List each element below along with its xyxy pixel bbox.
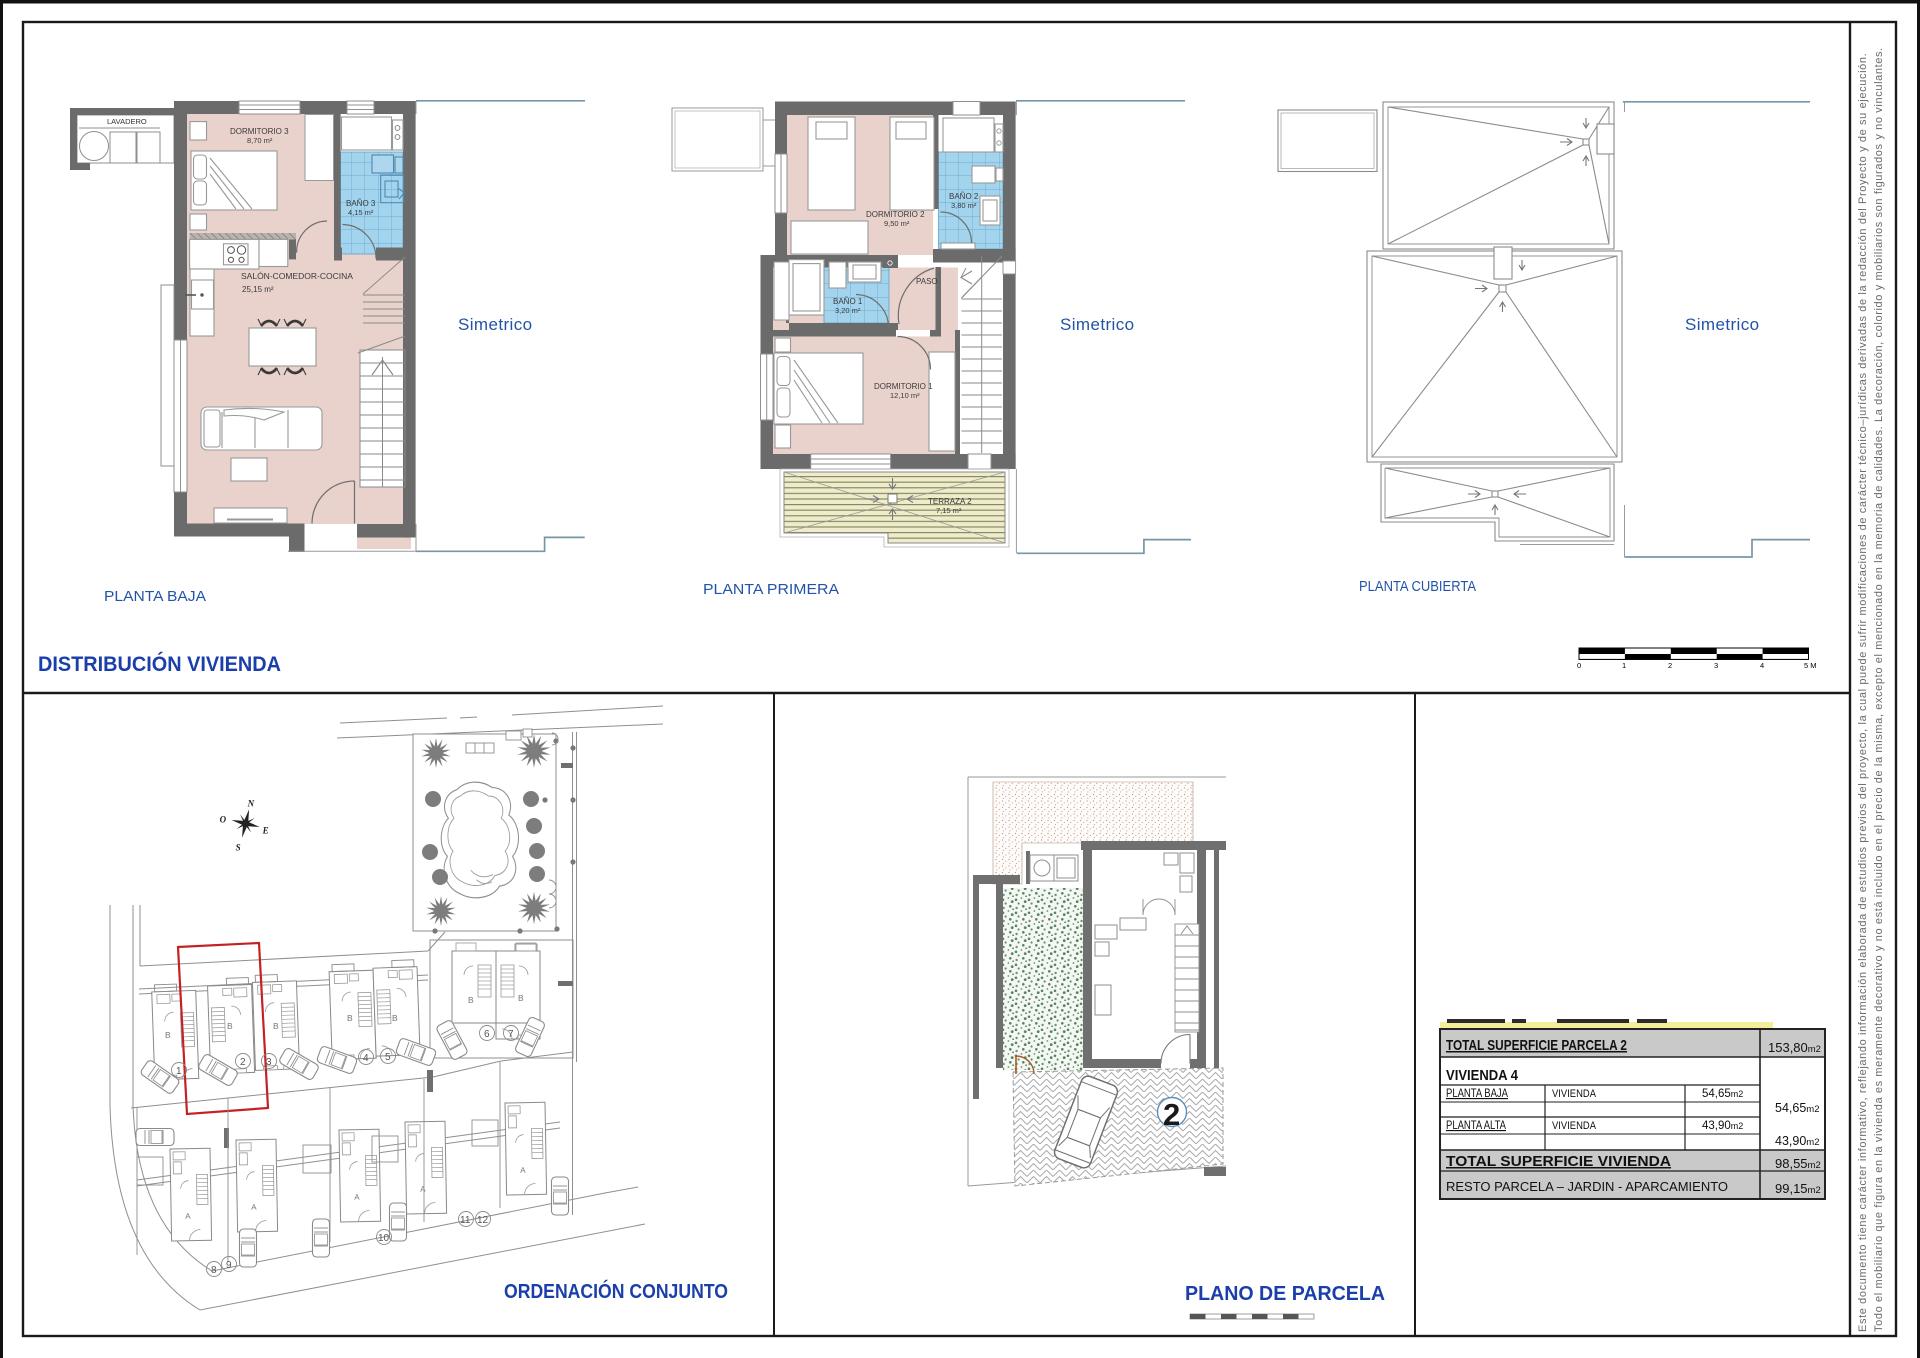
svg-text:B: B: [347, 1013, 353, 1023]
svg-text:LAVADERO: LAVADERO: [107, 117, 147, 126]
svg-text:54,65m2: 54,65m2: [1775, 1101, 1819, 1115]
svg-text:4,15 m²: 4,15 m²: [348, 208, 374, 217]
svg-text:7: 7: [508, 1029, 514, 1040]
svg-text:4: 4: [1760, 661, 1764, 670]
svg-text:B: B: [227, 1021, 233, 1031]
svg-text:43,90m2: 43,90m2: [1775, 1134, 1819, 1148]
svg-text:BAÑO 1: BAÑO 1: [833, 297, 863, 306]
svg-text:B: B: [165, 1030, 171, 1040]
svg-text:TOTAL SUPERFICIE VIVIENDA: TOTAL SUPERFICIE VIVIENDA: [1446, 1153, 1671, 1170]
svg-text:1: 1: [176, 1066, 182, 1077]
svg-text:2: 2: [240, 1057, 246, 1068]
svg-text:0: 0: [1577, 661, 1581, 670]
svg-text:PLANTA PRIMERA: PLANTA PRIMERA: [703, 581, 839, 598]
svg-text:BAÑO 2: BAÑO 2: [949, 192, 979, 201]
svg-text:2: 2: [1163, 1097, 1180, 1132]
svg-text:3,20 m²: 3,20 m²: [835, 306, 861, 315]
svg-text:11: 11: [460, 1215, 471, 1226]
svg-text:43,90m2: 43,90m2: [1702, 1120, 1743, 1132]
svg-text:N: N: [247, 799, 255, 809]
svg-text:VIVIENDA: VIVIENDA: [1552, 1088, 1597, 1100]
svg-text:3,80 m²: 3,80 m²: [951, 201, 977, 210]
svg-text:ORDENACIÓN CONJUNTO: ORDENACIÓN CONJUNTO: [504, 1279, 728, 1303]
svg-text:PLANO DE PARCELA: PLANO DE PARCELA: [1185, 1283, 1385, 1305]
svg-text:O: O: [220, 815, 227, 825]
svg-text:2: 2: [1668, 661, 1672, 670]
svg-text:DORMITORIO 3: DORMITORIO 3: [230, 127, 289, 136]
svg-text:6: 6: [484, 1029, 490, 1040]
svg-text:9,50 m²: 9,50 m²: [884, 219, 910, 228]
svg-text:8: 8: [211, 1265, 217, 1276]
svg-text:B: B: [518, 993, 524, 1003]
svg-text:10: 10: [378, 1233, 390, 1244]
svg-text:7,15 m²: 7,15 m²: [936, 506, 962, 515]
svg-text:SALÓN-COMEDOR-COCINA: SALÓN-COMEDOR-COCINA: [241, 271, 353, 281]
svg-text:PASO: PASO: [916, 277, 938, 286]
svg-text:5 M: 5 M: [1804, 661, 1817, 670]
svg-text:B: B: [468, 995, 474, 1005]
svg-text:BAÑO 3: BAÑO 3: [346, 199, 376, 208]
svg-text:VIVIENDA: VIVIENDA: [1552, 1120, 1597, 1132]
svg-text:VIVIENDA 4: VIVIENDA 4: [1446, 1068, 1518, 1084]
svg-text:PLANTA CUBIERTA: PLANTA CUBIERTA: [1359, 578, 1476, 595]
svg-text:Simetrico: Simetrico: [1060, 315, 1134, 334]
svg-text:TERRAZA 2: TERRAZA 2: [928, 497, 972, 506]
svg-text:4: 4: [363, 1053, 369, 1064]
svg-text:8,70 m²: 8,70 m²: [247, 136, 273, 145]
svg-text:3: 3: [1714, 661, 1718, 670]
svg-text:Este documento tiene caráct: Este documento tiene carácter informativ…: [1857, 53, 1869, 1332]
svg-text:Simetrico: Simetrico: [1685, 315, 1759, 334]
svg-text:TOTAL SUPERFICIE PARCELA 2: TOTAL SUPERFICIE PARCELA 2: [1446, 1037, 1627, 1054]
svg-text:25,15 m²: 25,15 m²: [242, 285, 274, 294]
svg-text:DISTRIBUCIÓN VIVIENDA: DISTRIBUCIÓN VIVIENDA: [38, 652, 281, 676]
svg-text:1: 1: [1622, 661, 1626, 670]
svg-text:Todo el mobiliario que fig: Todo el mobiliario que figura en la vivi…: [1873, 47, 1885, 1332]
svg-text:DORMITORIO 2: DORMITORIO 2: [866, 210, 925, 219]
svg-text:PLANTA ALTA: PLANTA ALTA: [1446, 1120, 1506, 1132]
svg-text:5: 5: [385, 1052, 391, 1063]
svg-text:3: 3: [266, 1057, 272, 1068]
svg-text:9: 9: [226, 1260, 232, 1271]
svg-text:12,10 m²: 12,10 m²: [890, 391, 920, 400]
svg-text:Simetrico: Simetrico: [458, 315, 532, 334]
svg-text:PLANTA BAJA: PLANTA BAJA: [104, 588, 206, 605]
svg-text:12: 12: [477, 1215, 489, 1226]
svg-text:RESTO PARCELA – JARDIN - APARC: RESTO PARCELA – JARDIN - APARCAMIENTO: [1446, 1179, 1728, 1194]
svg-text:E: E: [262, 826, 269, 836]
svg-text:S: S: [236, 843, 241, 853]
svg-text:PLANTA BAJA: PLANTA BAJA: [1446, 1088, 1508, 1100]
svg-text:B: B: [392, 1013, 398, 1023]
svg-text:54,65m2: 54,65m2: [1702, 1088, 1743, 1100]
svg-text:B: B: [273, 1021, 279, 1031]
svg-text:DORMITORIO 1: DORMITORIO 1: [874, 382, 933, 391]
